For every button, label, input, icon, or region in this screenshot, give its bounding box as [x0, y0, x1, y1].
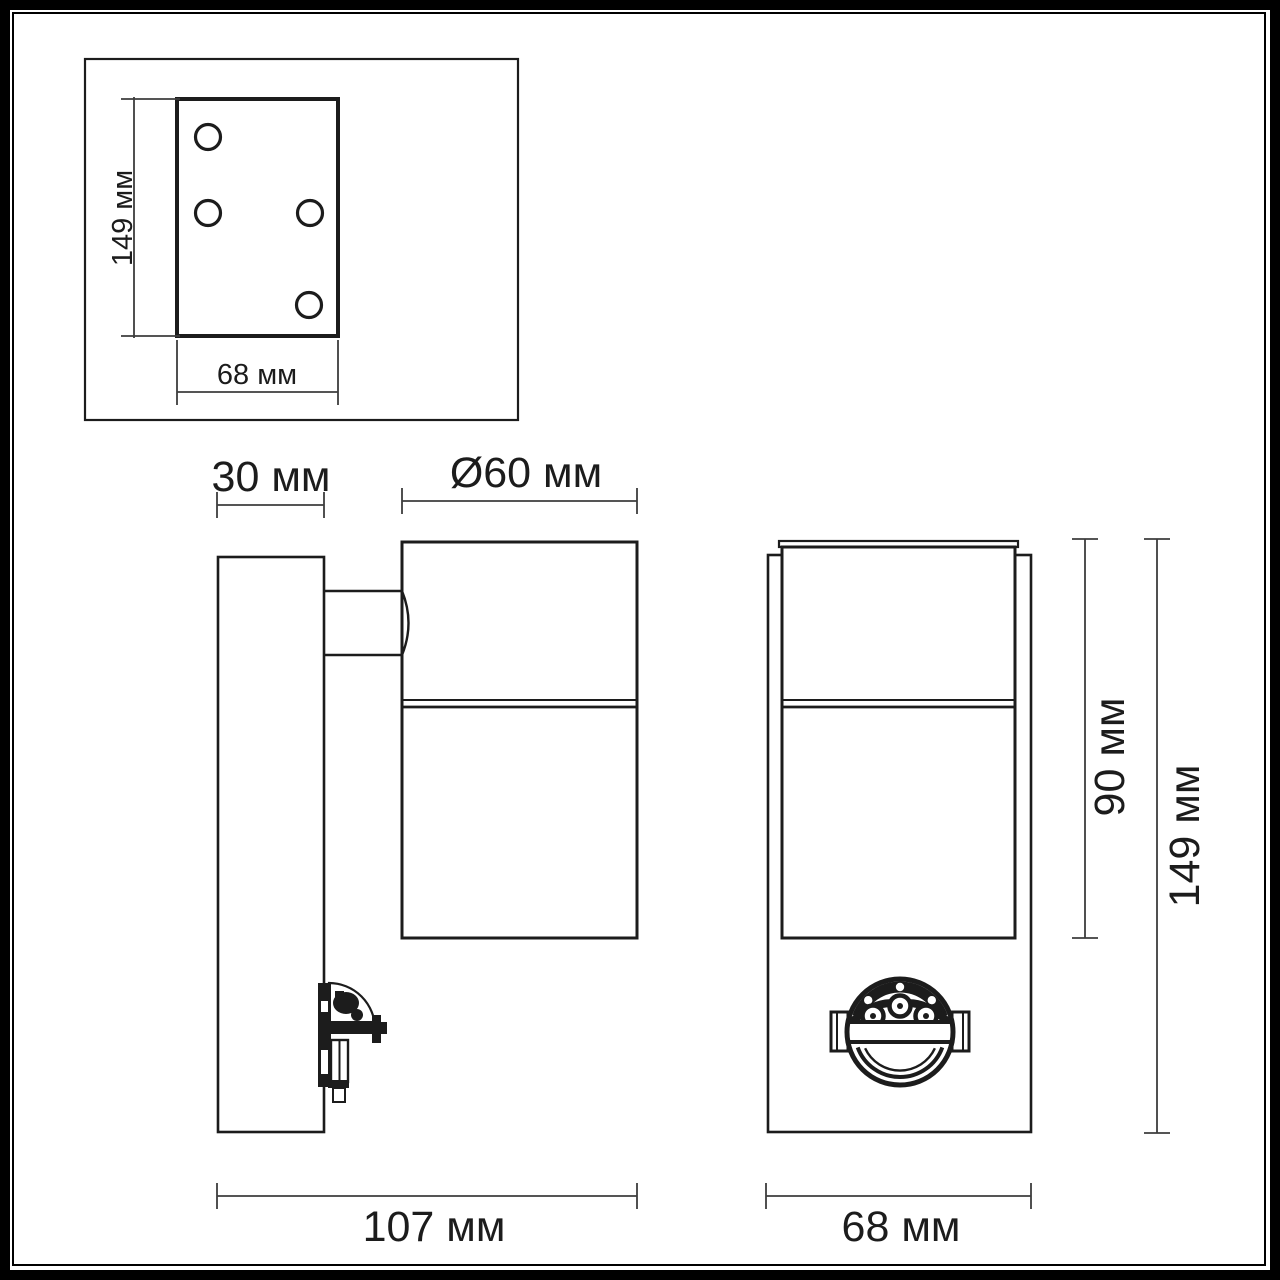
- dimension-label: 30 мм: [212, 453, 331, 501]
- front-width-dimension: 68 мм: [766, 1183, 1031, 1251]
- dimensions: 30 мм Ø60 мм 107 мм 68 мм 90 мм: [212, 449, 1209, 1251]
- side-view: [218, 542, 637, 1132]
- lamp-cylinder-front: [782, 547, 1015, 938]
- sensor-ring-dot: [864, 996, 872, 1004]
- body-height-dimension: 90 мм: [1072, 539, 1134, 938]
- sensor-hinge-pin: [351, 1009, 363, 1021]
- sensor-foot: [328, 1080, 349, 1088]
- sensor-lens-tab: [372, 1015, 381, 1043]
- sensor-ring-dot: [928, 996, 936, 1004]
- inset-box: [85, 59, 518, 420]
- total-depth-dimension: 107 мм: [217, 1183, 637, 1251]
- wall-plate-side: [218, 557, 324, 1132]
- inset-width-dimension: 68 мм: [177, 340, 338, 405]
- sensor-bracket-slot: [321, 1050, 328, 1074]
- mounting-hole: [297, 293, 322, 318]
- sensor-screw: [335, 991, 344, 998]
- plate-depth-dimension: 30 мм: [212, 453, 331, 518]
- front-view: [768, 541, 1031, 1132]
- sensor-led-dot: [870, 1013, 876, 1019]
- motion-sensor-side: [318, 983, 387, 1102]
- dimension-label: 149 мм: [107, 170, 139, 266]
- lamp-cylinder-side: [402, 542, 637, 938]
- mounting-hole: [196, 125, 221, 150]
- dimension-label: 149 мм: [1161, 765, 1209, 908]
- total-height-dimension: 149 мм: [1144, 539, 1209, 1133]
- inner-frame-border: [13, 13, 1265, 1265]
- diameter-dimension: Ø60 мм: [402, 449, 637, 514]
- sensor-ring-dot: [896, 983, 904, 991]
- dimension-label: 107 мм: [363, 1203, 506, 1251]
- technical-drawing-page: 149 мм 68 мм: [0, 0, 1280, 1280]
- sensor-bracket-slot: [321, 1001, 328, 1012]
- dimension-label: 90 мм: [1086, 698, 1134, 817]
- dimension-label: Ø60 мм: [450, 449, 602, 497]
- sensor-led-dot: [897, 1003, 903, 1009]
- sensor-foot-detail: [333, 1088, 345, 1102]
- sensor-lens-nub: [380, 1022, 387, 1034]
- sensor-led-dot: [923, 1013, 929, 1019]
- mounting-hole: [298, 201, 323, 226]
- sensor-lens-arm: [331, 1021, 375, 1034]
- dimension-label: 68 мм: [217, 359, 297, 391]
- mounting-hole: [196, 201, 221, 226]
- inset-height-dimension: 149 мм: [107, 97, 180, 338]
- mounting-plate-inset-view: 149 мм 68 мм: [85, 59, 518, 420]
- dimension-label: 68 мм: [842, 1203, 961, 1251]
